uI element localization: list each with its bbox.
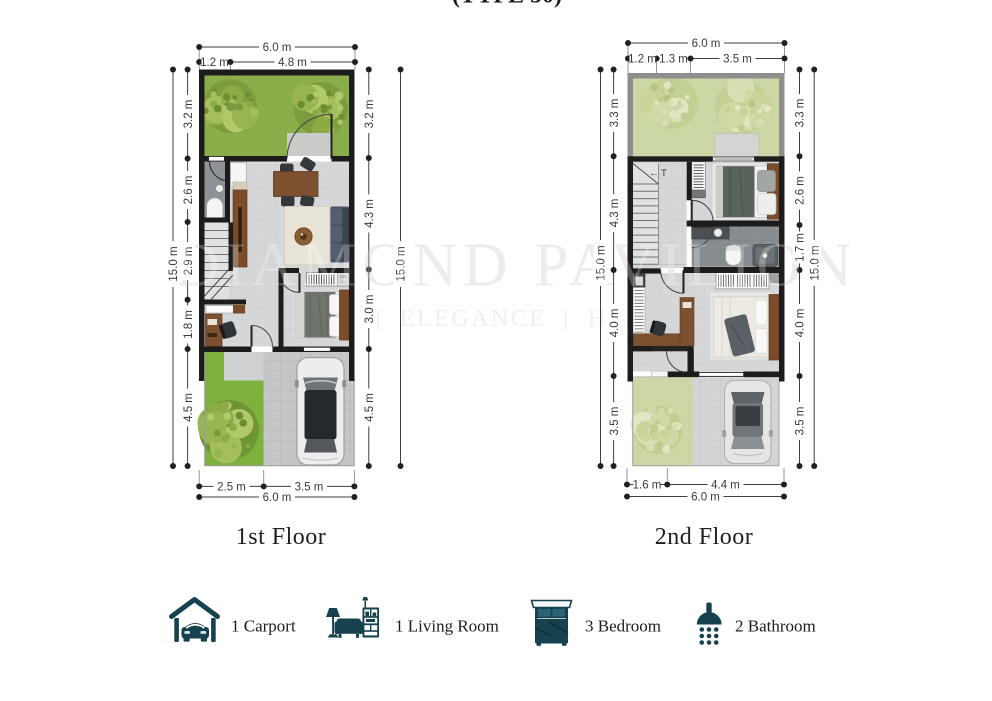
- svg-text:4.3 m: 4.3 m: [609, 199, 621, 228]
- svg-text:3.5 m: 3.5 m: [723, 54, 752, 66]
- svg-text:4.0 m: 4.0 m: [609, 309, 621, 338]
- svg-text:3.2 m: 3.2 m: [364, 100, 376, 129]
- svg-text:1.3 m: 1.3 m: [659, 54, 688, 66]
- svg-text:1.6 m: 1.6 m: [633, 480, 662, 492]
- svg-text:3.5 m: 3.5 m: [795, 407, 807, 436]
- svg-text:2.6 m: 2.6 m: [795, 176, 807, 205]
- svg-text:3 Bedroom: 3 Bedroom: [585, 617, 661, 636]
- svg-text:4.5 m: 4.5 m: [183, 393, 195, 422]
- svg-text:3.2 m: 3.2 m: [183, 100, 195, 129]
- svg-text:2.5 m: 2.5 m: [217, 482, 246, 494]
- svg-text:1 Carport: 1 Carport: [231, 617, 296, 636]
- svg-text:1st Floor: 1st Floor: [236, 524, 327, 550]
- svg-text:(TYPE 50): (TYPE 50): [452, 0, 562, 9]
- svg-text:4.8 m: 4.8 m: [278, 57, 307, 69]
- svg-text:2nd Floor: 2nd Floor: [655, 524, 754, 550]
- svg-text:2 Bathroom: 2 Bathroom: [735, 617, 816, 636]
- svg-text:← T: ← T: [649, 168, 667, 179]
- svg-text:3.3 m: 3.3 m: [609, 99, 621, 128]
- svg-text:2.6 m: 2.6 m: [183, 176, 195, 205]
- svg-text:1 Living Room: 1 Living Room: [395, 617, 499, 636]
- svg-text:1.8 m: 1.8 m: [183, 310, 195, 339]
- svg-text:4.3 m: 4.3 m: [364, 199, 376, 228]
- svg-text:3.5 m: 3.5 m: [295, 482, 324, 494]
- svg-text:4.0 m: 4.0 m: [795, 309, 807, 338]
- svg-text:6.0 m: 6.0 m: [263, 492, 292, 504]
- svg-text:6.0 m: 6.0 m: [692, 38, 721, 50]
- svg-text:1.2 m: 1.2 m: [628, 54, 657, 66]
- svg-text:1.2 m: 1.2 m: [200, 57, 229, 69]
- svg-text:3.3 m: 3.3 m: [795, 99, 807, 128]
- svg-text:6.0 m: 6.0 m: [691, 492, 720, 504]
- svg-text:DIAMOND PAVILION: DIAMOND PAVILION: [175, 232, 857, 300]
- svg-text:6.0 m: 6.0 m: [263, 42, 292, 54]
- svg-text:4.5 m: 4.5 m: [364, 393, 376, 422]
- svg-text:3.5 m: 3.5 m: [609, 407, 621, 436]
